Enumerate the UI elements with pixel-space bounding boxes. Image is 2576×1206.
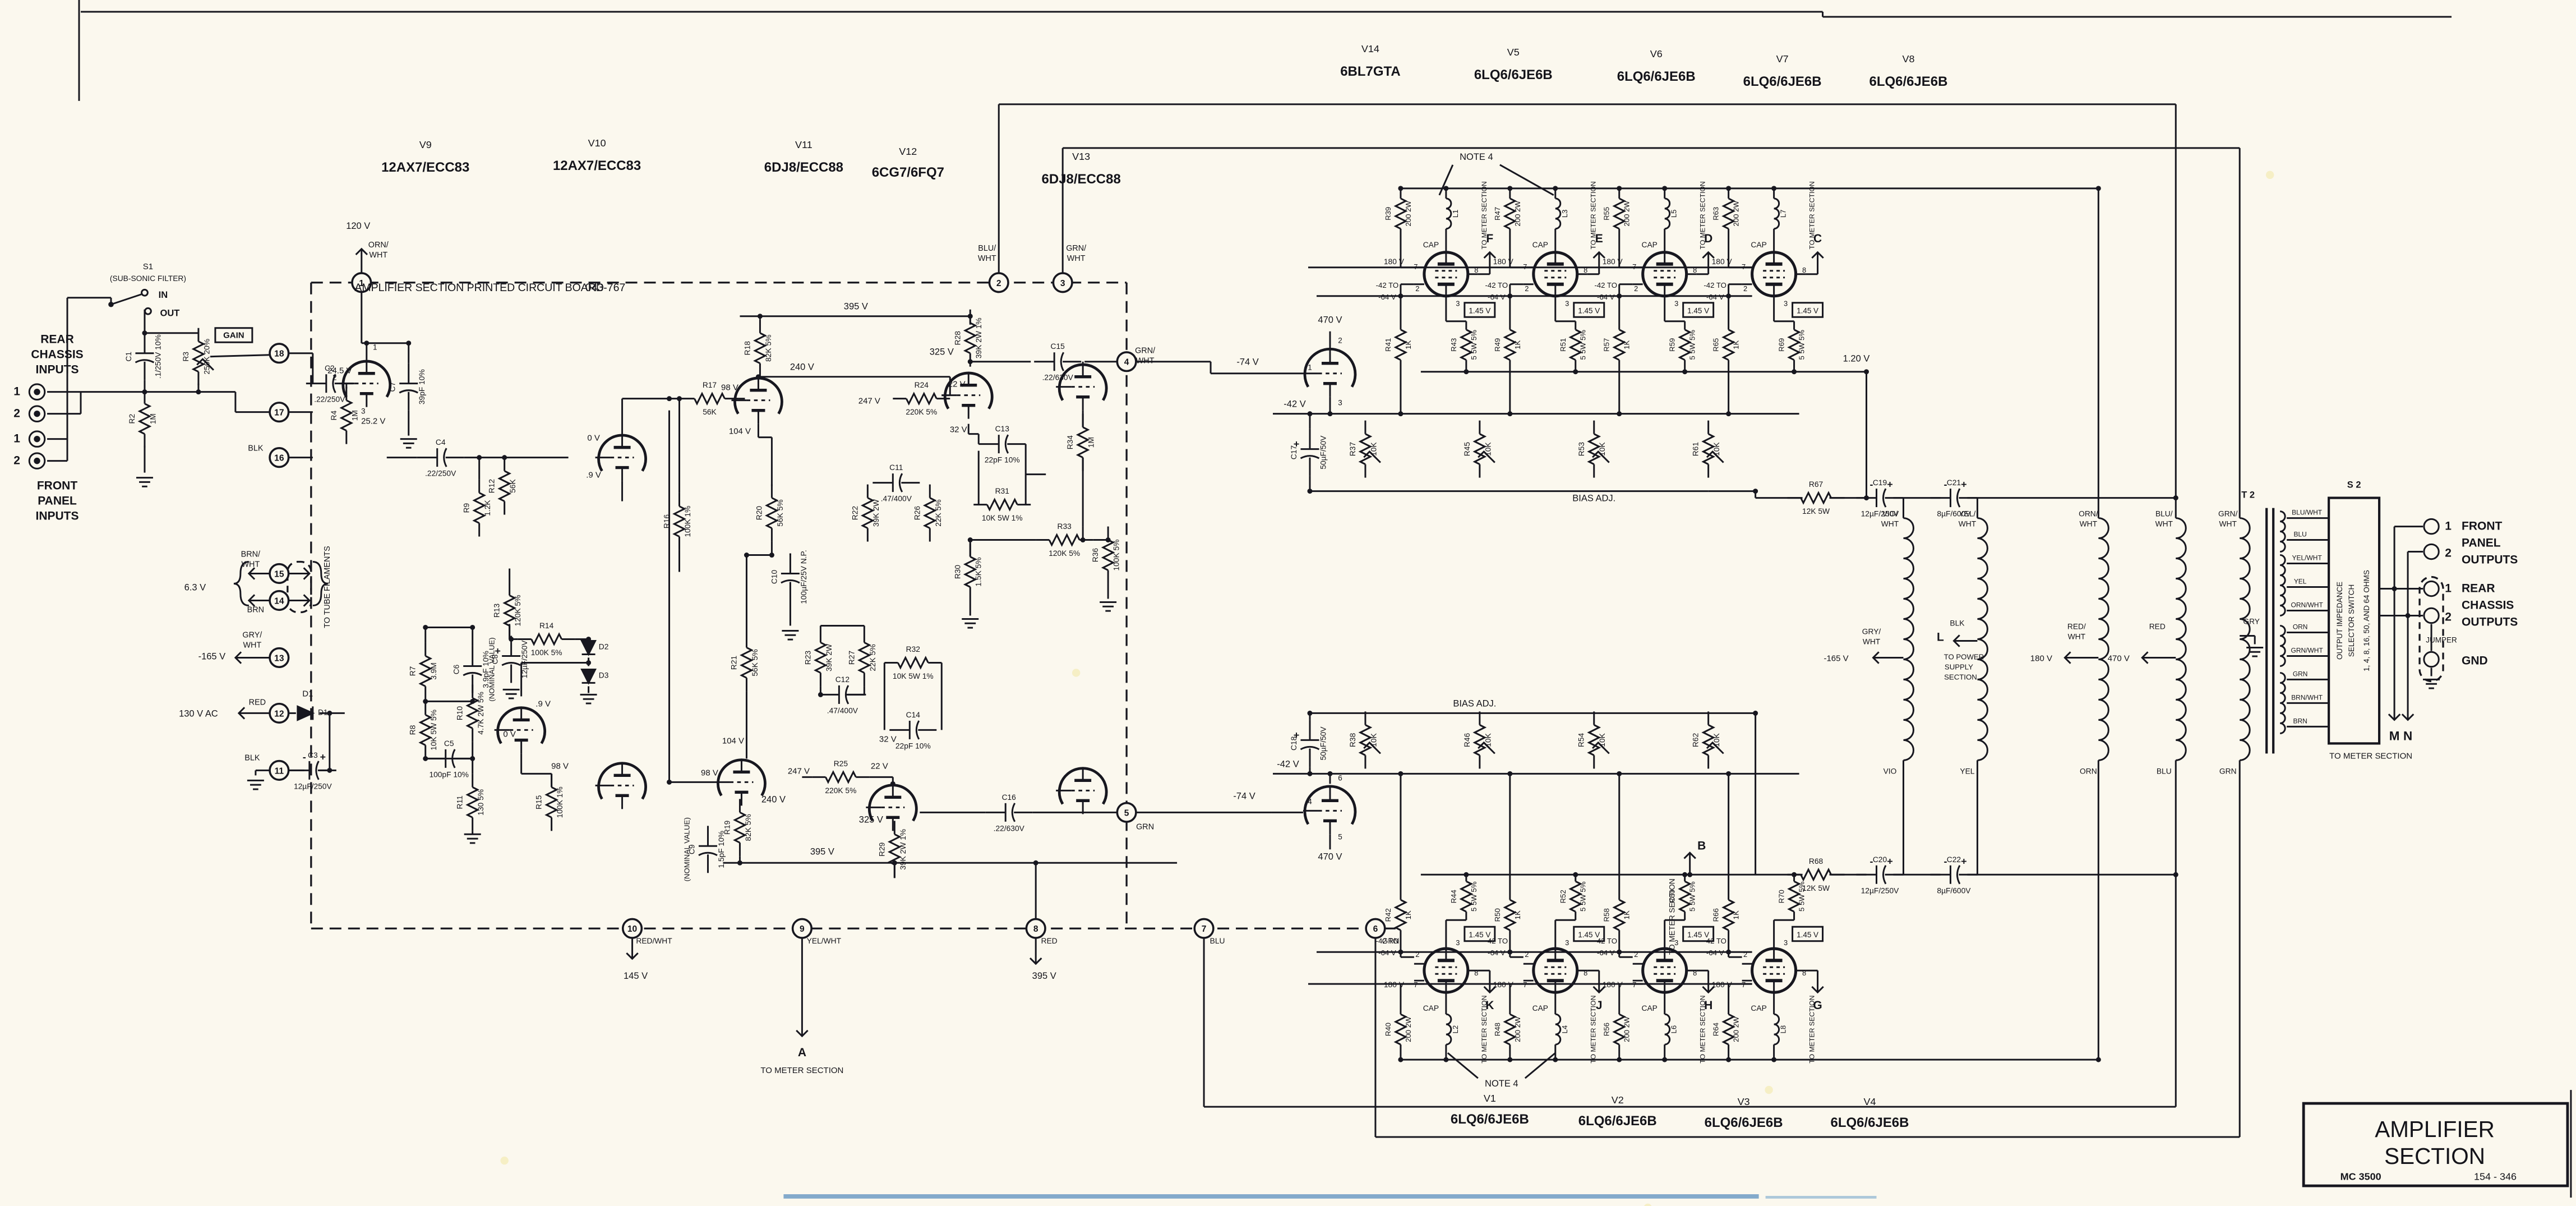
label: 1, 4, 8, 16, 50, AND 64 OHMS bbox=[2362, 570, 2371, 671]
resistor-value: 120K 5% bbox=[1049, 549, 1080, 558]
coil-winding bbox=[2280, 555, 2285, 616]
grid-bias-range: -42 TO bbox=[1594, 281, 1617, 289]
label: V8 bbox=[1902, 53, 1914, 65]
junction-dot bbox=[2173, 495, 2178, 500]
cap-value: 12µF/250V bbox=[1861, 886, 1900, 895]
resistor-name: R52 bbox=[1559, 890, 1567, 903]
screen-voltage: 180 V bbox=[1603, 981, 1623, 989]
resistor-element bbox=[675, 507, 685, 537]
junction-dot bbox=[1398, 1057, 1403, 1062]
label: 4 bbox=[1308, 797, 1312, 805]
label: SUPPLY bbox=[1945, 662, 1973, 671]
meter-section-label: TO METER SECTION bbox=[1480, 996, 1488, 1064]
label: BLK bbox=[248, 444, 264, 453]
screen-voltage: 180 V bbox=[1493, 981, 1514, 989]
resistor-value: 4.7K 2W 5% bbox=[477, 692, 485, 735]
label: V1 bbox=[1484, 1093, 1496, 1104]
screen-voltage: 180 V bbox=[1493, 257, 1514, 266]
resistor-element bbox=[1801, 493, 1831, 503]
resistor-value: 39K 2W bbox=[872, 499, 880, 527]
resistor-value: 1K bbox=[1513, 910, 1522, 919]
label: GRN bbox=[1382, 937, 1400, 945]
label: NOTE 4 bbox=[1485, 1079, 1518, 1089]
cap-label: CAP bbox=[1751, 241, 1766, 249]
label: TO POWER bbox=[1944, 652, 1984, 661]
resistor-value: 250K 20% bbox=[202, 339, 211, 375]
junction-dot bbox=[1553, 186, 1558, 191]
label: IN bbox=[159, 290, 168, 300]
resistor-value: 1K bbox=[1404, 910, 1412, 919]
label: VIO bbox=[1883, 767, 1897, 775]
junction-dot bbox=[1726, 186, 1731, 191]
label: YEL bbox=[1960, 767, 1974, 775]
polarity-minus: - bbox=[303, 751, 306, 762]
ground-symbol bbox=[400, 439, 417, 448]
label: 2 bbox=[1338, 337, 1342, 345]
diode-name: D1 bbox=[318, 708, 328, 716]
label: 6LQ6/6JE6B bbox=[1831, 1115, 1909, 1130]
terminal-number: 2 bbox=[996, 279, 1001, 288]
junction-dot bbox=[477, 455, 482, 460]
resistor-element bbox=[140, 404, 150, 434]
label: 247 V bbox=[788, 766, 810, 776]
label: WHT bbox=[2219, 520, 2237, 528]
output-terminal bbox=[2424, 581, 2439, 596]
coil-name: L6 bbox=[1670, 1025, 1678, 1034]
resistor-name: R55 bbox=[1603, 207, 1611, 220]
resistor-name: R44 bbox=[1449, 890, 1458, 903]
resistor-value: 1M bbox=[1087, 437, 1096, 448]
ground-symbol bbox=[782, 630, 798, 639]
label: V9 bbox=[419, 139, 432, 150]
resistor-value: 1.2K bbox=[483, 500, 492, 516]
junction-dot bbox=[968, 537, 973, 542]
resistor-value: 200 2W bbox=[1513, 201, 1522, 227]
label: 470 V bbox=[1318, 315, 1342, 325]
label: GRY bbox=[2243, 617, 2260, 625]
label: FRONT bbox=[2462, 520, 2502, 533]
resistor-element bbox=[532, 634, 562, 644]
label: ORN bbox=[2080, 767, 2097, 775]
resistor-value: 3.9M bbox=[430, 662, 438, 680]
screen-voltage: 180 V bbox=[1384, 981, 1405, 989]
resistor-name: R14 bbox=[539, 622, 554, 630]
pin-number: 7 bbox=[1742, 263, 1746, 271]
cap-value: .22/250V bbox=[425, 469, 456, 478]
resistor-element bbox=[925, 498, 935, 528]
label: 2 bbox=[2445, 547, 2452, 560]
label: WHT bbox=[241, 560, 260, 569]
label: (NOMINAL VALUE) bbox=[682, 817, 691, 881]
cathode-voltage: 1.45 V bbox=[1469, 306, 1490, 315]
output-terminal bbox=[2424, 608, 2439, 623]
resistor-element bbox=[500, 471, 510, 501]
label: BLU bbox=[2157, 767, 2172, 775]
cap-value: .22/630V bbox=[994, 824, 1025, 832]
filament-dashed-loop bbox=[288, 562, 311, 613]
title-block-model: MC 3500 bbox=[2340, 1171, 2381, 1182]
component-layer bbox=[29, 171, 2568, 1206]
label: L bbox=[1937, 630, 1944, 643]
label: JUMPER bbox=[2426, 636, 2457, 644]
resistor-name: R68 bbox=[1809, 857, 1823, 866]
junction-dot bbox=[737, 860, 742, 866]
resistor-value: 10K bbox=[1369, 442, 1378, 456]
label: T 2 bbox=[2241, 490, 2255, 500]
resistor-name: R17 bbox=[703, 381, 717, 389]
pin-number: 3 bbox=[1565, 300, 1569, 308]
pin-number: 8 bbox=[1474, 969, 1478, 977]
label: S 2 bbox=[2347, 480, 2361, 490]
dashed-layer bbox=[288, 283, 2443, 928]
resistor-name: R47 bbox=[1493, 207, 1502, 220]
diode-name: D2 bbox=[599, 642, 609, 651]
cap-value: .47/400V bbox=[881, 495, 912, 503]
grid-bias-range: -42 TO bbox=[1485, 281, 1508, 289]
resistor-name: R46 bbox=[1463, 733, 1471, 747]
cathode-voltage: 1.45 V bbox=[1797, 931, 1818, 939]
resistor-name: R20 bbox=[755, 506, 763, 521]
junction-dot bbox=[406, 340, 411, 346]
junction-dot bbox=[1726, 293, 1731, 298]
title-block-line1: AMPLIFIER bbox=[2375, 1116, 2495, 1142]
cap-name: C10 bbox=[770, 570, 778, 584]
resistor-element bbox=[741, 647, 751, 678]
grid-bias-range: -64 V bbox=[1706, 293, 1724, 301]
label: GRN/ bbox=[1066, 244, 1086, 253]
label: RED bbox=[249, 698, 266, 707]
cap-value: .47/400V bbox=[827, 706, 858, 715]
label: 3 bbox=[1338, 399, 1342, 407]
junction-dot bbox=[1726, 1057, 1731, 1062]
label: -74 V bbox=[1233, 791, 1255, 801]
label: 6LQ6/6JE6B bbox=[1743, 74, 1822, 89]
diode-symbol bbox=[582, 669, 595, 683]
resistor-value: 1K bbox=[1732, 910, 1741, 919]
meter-section-label: TO METER SECTION bbox=[1699, 996, 1707, 1064]
terminal-number: 12 bbox=[274, 709, 284, 719]
label: V13 bbox=[1072, 151, 1090, 162]
junction-dot bbox=[1307, 411, 1312, 416]
junction-dot bbox=[1662, 186, 1667, 191]
resistor-name: R24 bbox=[915, 381, 929, 389]
coil-name: L2 bbox=[1451, 1025, 1460, 1034]
cap-value: 50µF/50V bbox=[1319, 726, 1327, 761]
resistor-name: R62 bbox=[1692, 733, 1700, 747]
scan-artifact-blue-line bbox=[783, 1194, 1758, 1199]
junction-dot bbox=[758, 314, 763, 319]
cap-name: C17 bbox=[1290, 445, 1298, 459]
label: V4 bbox=[1864, 1096, 1876, 1107]
resistor-name: R58 bbox=[1603, 908, 1611, 922]
resistor-name: R50 bbox=[1493, 908, 1502, 922]
label: 395 V bbox=[844, 302, 868, 312]
junction-dot bbox=[423, 625, 428, 630]
label: TO METER SECTION bbox=[1668, 878, 1677, 955]
junction-dot bbox=[1307, 771, 1312, 776]
resistor-name: R49 bbox=[1493, 338, 1502, 352]
pin-number: 3 bbox=[1784, 938, 1788, 947]
ground-symbol bbox=[503, 689, 520, 698]
label: YEL/WHT bbox=[807, 937, 842, 945]
label: BIAS ADJ. bbox=[1572, 494, 1615, 504]
pin-number: 2 bbox=[1743, 950, 1747, 959]
label: BLU/WHT bbox=[2292, 509, 2323, 517]
resistor-value: 10K bbox=[1712, 733, 1721, 747]
terminal-number: 10 bbox=[627, 924, 638, 934]
resistor-value: 5 5W 5% bbox=[1470, 881, 1478, 912]
resistor-value: 200 2W bbox=[1513, 1016, 1522, 1042]
junction-dot bbox=[1682, 369, 1687, 374]
screen-voltage: 180 V bbox=[1384, 257, 1405, 266]
cap-name: C22 bbox=[1947, 855, 1961, 864]
label: YEL bbox=[2294, 578, 2307, 586]
junction-dot bbox=[667, 396, 672, 401]
pin-number: 8 bbox=[1584, 969, 1587, 977]
wire bbox=[1525, 1053, 1555, 1078]
label: YEL/WHT bbox=[2292, 554, 2323, 562]
label: GRN bbox=[2219, 767, 2237, 775]
label: 6LQ6/6JE6B bbox=[1705, 1115, 1783, 1130]
label: 043-767 bbox=[585, 282, 626, 294]
resistor-name: R41 bbox=[1384, 338, 1392, 352]
wire bbox=[210, 355, 269, 357]
label: V11 bbox=[795, 139, 812, 150]
grid-bias-range: -64 V bbox=[1597, 949, 1615, 957]
junction-dot bbox=[1617, 1057, 1622, 1062]
resistor-value: 10K bbox=[1598, 733, 1606, 747]
resistor-name: R45 bbox=[1463, 442, 1471, 457]
label: AMPLIFIER SECTION PRINTED CIRCUIT BOARD bbox=[354, 282, 604, 294]
ground-symbol bbox=[247, 780, 264, 789]
junction-dot bbox=[1662, 1057, 1667, 1062]
resistor-name: R38 bbox=[1349, 733, 1357, 747]
terminal-number: 8 bbox=[1033, 924, 1038, 934]
coil-winding bbox=[2280, 512, 2285, 552]
coil-winding bbox=[2280, 625, 2285, 666]
label: BRN bbox=[2293, 717, 2307, 725]
label: REAR bbox=[40, 333, 73, 346]
label: GRY/ bbox=[242, 630, 262, 639]
resistor-name: R13 bbox=[493, 604, 501, 618]
label: 0 V bbox=[503, 729, 516, 739]
coil-name: L5 bbox=[1670, 209, 1678, 218]
resistor-name: R65 bbox=[1712, 338, 1720, 352]
junction-dot bbox=[1327, 411, 1332, 416]
resistor-element bbox=[1078, 427, 1088, 458]
resistor-name: R64 bbox=[1712, 1023, 1720, 1036]
pin-number: 8 bbox=[1802, 266, 1806, 274]
jack-pin bbox=[34, 411, 40, 417]
label: BLU bbox=[1210, 937, 1225, 945]
label: 325 V bbox=[859, 814, 883, 825]
text-layer: R21MR3250K 20%R41MR73.9MR810K 5W 5%R91.2… bbox=[13, 43, 2518, 1182]
coil-winding bbox=[1774, 199, 1779, 229]
cap-value: 12µF/250V bbox=[520, 640, 529, 679]
resistor-name: R4 bbox=[330, 411, 338, 421]
resistor-element bbox=[906, 394, 936, 404]
junction-dot bbox=[1573, 369, 1578, 374]
resistor-name: R40 bbox=[1384, 1023, 1392, 1036]
resistor-name: R34 bbox=[1066, 435, 1074, 450]
resistor-name: R28 bbox=[953, 331, 962, 346]
resistor-element bbox=[1589, 725, 1599, 755]
resistor-element bbox=[1360, 725, 1370, 755]
terminal-number: 4 bbox=[1124, 358, 1129, 367]
resistor-value: 82K 5% bbox=[764, 335, 773, 362]
resistor-element bbox=[815, 642, 825, 673]
resistor-element bbox=[965, 557, 975, 587]
coil-winding bbox=[2280, 673, 2285, 733]
resistor-name: R67 bbox=[1809, 480, 1823, 489]
junction-dot bbox=[1864, 369, 1869, 374]
coil-winding bbox=[1555, 199, 1561, 229]
coil-winding bbox=[1977, 518, 1987, 761]
resistor-name: R51 bbox=[1559, 338, 1567, 352]
junction-dot bbox=[1573, 872, 1578, 877]
label: .9 V bbox=[535, 699, 551, 708]
resistor-name: R7 bbox=[409, 666, 417, 676]
resistor-element bbox=[1589, 434, 1599, 464]
grid-bias-range: -64 V bbox=[1378, 293, 1396, 301]
label: WHT bbox=[1881, 520, 1899, 528]
label: 2 bbox=[333, 374, 337, 382]
resistor-name: R3 bbox=[182, 352, 190, 362]
ground-symbol bbox=[1100, 602, 1116, 611]
scan-speckle bbox=[2266, 171, 2274, 179]
resistor-name: R11 bbox=[456, 795, 464, 809]
coil-winding bbox=[2098, 518, 2108, 761]
label: OUTPUT IMPEDANCE bbox=[2335, 582, 2344, 660]
label: WHT bbox=[978, 254, 996, 263]
label: 6 bbox=[1338, 774, 1342, 782]
label: PANEL bbox=[38, 495, 77, 508]
junction-dot bbox=[1753, 711, 1758, 716]
coil-winding bbox=[1446, 199, 1451, 229]
resistor-name: R26 bbox=[913, 506, 921, 521]
resistor-name: R9 bbox=[463, 503, 471, 513]
cap-name: C14 bbox=[906, 711, 921, 719]
label: TO TUBE FILAMENTS bbox=[323, 546, 332, 628]
resistor-element bbox=[1475, 434, 1485, 464]
junction-dot bbox=[1792, 369, 1797, 374]
label: SECTION bbox=[1944, 673, 1977, 681]
junction-dot bbox=[1307, 711, 1312, 716]
junction-dot bbox=[1398, 771, 1403, 776]
junction-dot bbox=[1307, 489, 1312, 494]
pin-number: 2 bbox=[1743, 284, 1747, 293]
resistor-element bbox=[1049, 535, 1079, 545]
screen-voltage: 180 V bbox=[1603, 257, 1623, 266]
resistor-value: 56K 5% bbox=[776, 499, 784, 526]
cathode-voltage: 1.45 V bbox=[1687, 306, 1709, 315]
coil-name: L3 bbox=[1561, 209, 1569, 218]
junction-dot bbox=[1771, 186, 1776, 191]
junction-dot bbox=[1682, 872, 1687, 877]
resistor-element bbox=[825, 772, 856, 782]
junction-dot bbox=[1507, 186, 1512, 191]
label: 6BL7GTA bbox=[1340, 64, 1400, 79]
resistor-element bbox=[735, 812, 745, 843]
terminal-number: 18 bbox=[274, 349, 284, 359]
label: BLK bbox=[244, 753, 260, 762]
switch-blade bbox=[111, 294, 141, 305]
label: GAIN bbox=[223, 331, 244, 340]
junction-dot bbox=[1398, 186, 1403, 191]
resistor-name: R16 bbox=[663, 514, 671, 529]
label: V10 bbox=[588, 137, 606, 149]
label: A bbox=[798, 1046, 806, 1059]
junction-dot bbox=[2096, 1057, 2101, 1062]
cap-name: C20 bbox=[1873, 855, 1887, 864]
cap-value: .1/250V 10% bbox=[154, 334, 162, 379]
terminal-number: 15 bbox=[274, 570, 284, 579]
resistor-value: 1K bbox=[1404, 340, 1412, 349]
pin-number: 3 bbox=[1674, 300, 1678, 308]
label: -165 V bbox=[198, 651, 226, 661]
resistor-value: 10K bbox=[1484, 733, 1492, 747]
label: 247 V bbox=[858, 397, 880, 406]
screen-voltage: 180 V bbox=[1712, 257, 1733, 266]
cap-value: 100pF 10% bbox=[429, 770, 468, 779]
resistor-value: 22K 5% bbox=[869, 644, 877, 671]
scan-speckle bbox=[1072, 669, 1080, 676]
resistor-element bbox=[547, 787, 557, 817]
resistor-value: 10K bbox=[1712, 442, 1721, 456]
label: 12AX7/ECC83 bbox=[381, 160, 469, 175]
label: YEL/ bbox=[1959, 510, 1975, 518]
resistor-value: 5 5W 5% bbox=[1579, 330, 1587, 360]
label: V7 bbox=[1776, 53, 1789, 65]
resistor-value: 1K bbox=[1732, 340, 1741, 349]
label: M bbox=[2389, 729, 2400, 743]
junction-dot bbox=[470, 625, 475, 630]
terminal-number: 3 bbox=[1060, 279, 1065, 288]
resistor-name: R43 bbox=[1449, 338, 1458, 352]
resistor-name: R69 bbox=[1778, 338, 1786, 352]
diode-symbol bbox=[582, 641, 595, 654]
label: 24.5 V bbox=[327, 366, 352, 376]
resistor-name: R63 bbox=[1712, 207, 1720, 220]
label: WHT bbox=[1067, 254, 1086, 263]
resistor-name: R21 bbox=[730, 656, 738, 670]
label: 0 V bbox=[587, 434, 600, 443]
resistor-value: 200 2W bbox=[1732, 1016, 1741, 1042]
resistor-name: R70 bbox=[1778, 890, 1786, 903]
resistor-value: 1M bbox=[350, 410, 359, 421]
label: 180 V bbox=[2030, 653, 2052, 663]
label: 240 V bbox=[790, 362, 814, 372]
resistor-name: R66 bbox=[1712, 908, 1720, 922]
coil-name: L7 bbox=[1779, 209, 1788, 218]
resistor-element bbox=[421, 715, 431, 745]
cap-label: CAP bbox=[1532, 1004, 1548, 1012]
resistor-value: 10K 5W 1% bbox=[982, 514, 1023, 522]
pin-number: 7 bbox=[1414, 263, 1418, 271]
junction-dot bbox=[1617, 411, 1622, 416]
coil-winding bbox=[1774, 1014, 1779, 1044]
cap-name: C11 bbox=[889, 463, 903, 472]
meter-section-label: TO METER SECTION bbox=[1480, 181, 1488, 249]
resistor-name: R37 bbox=[1349, 442, 1357, 456]
polarity-plus: + bbox=[1961, 855, 1967, 867]
label: WHT bbox=[1959, 520, 1977, 528]
cap-name: C15 bbox=[1051, 342, 1065, 351]
junction-dot bbox=[1398, 293, 1403, 298]
label: ORN bbox=[2293, 623, 2308, 630]
label: TO METER SECTION bbox=[760, 1066, 843, 1075]
resistor-value: 1M bbox=[149, 413, 157, 424]
